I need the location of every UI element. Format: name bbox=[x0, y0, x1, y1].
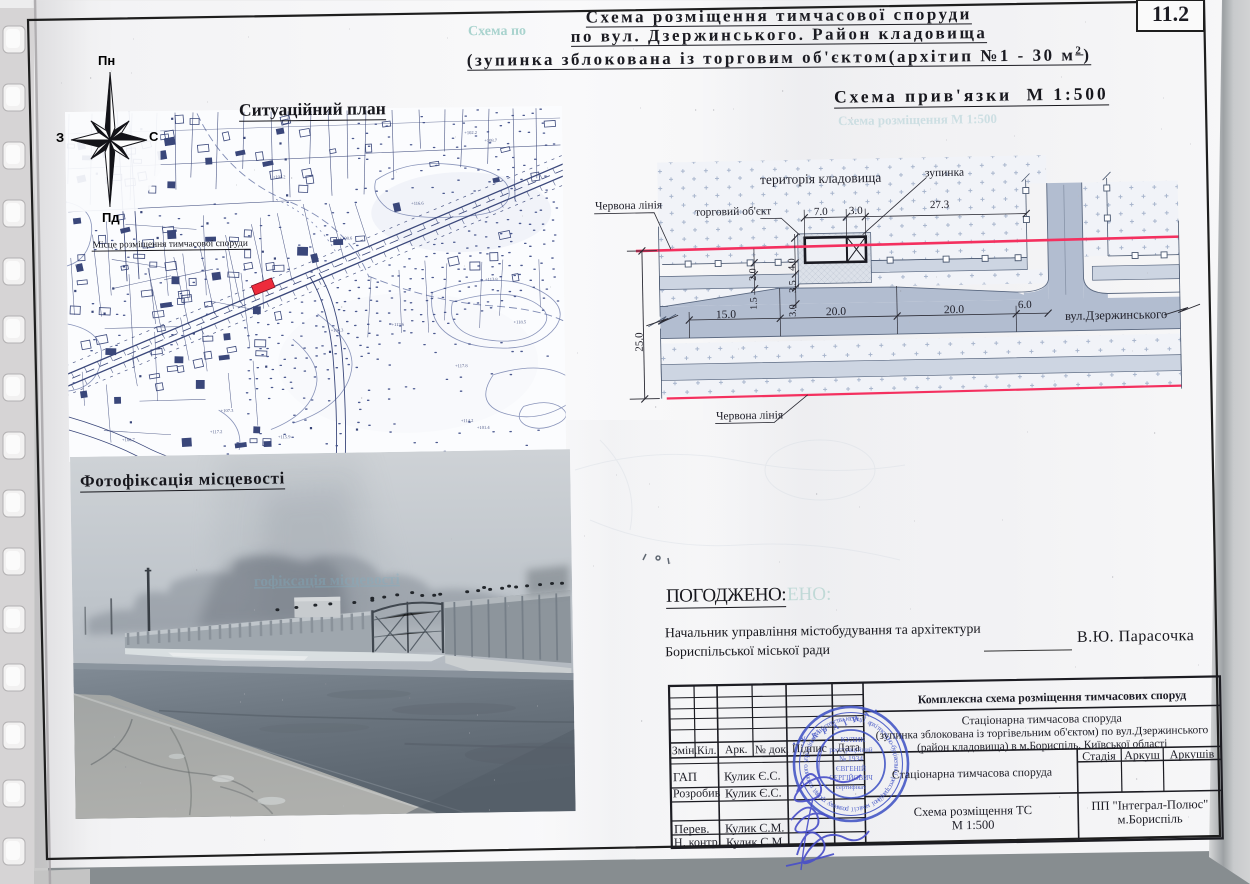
svg-text:+104.3: +104.3 bbox=[331, 328, 344, 333]
svg-text:+118.5: +118.5 bbox=[514, 319, 527, 324]
svg-text:ї: ї bbox=[851, 805, 853, 813]
svg-text:+108.6: +108.6 bbox=[340, 235, 353, 240]
svg-text:+114.2: +114.2 bbox=[461, 418, 474, 423]
svg-text:+113.6: +113.6 bbox=[392, 322, 405, 327]
svg-text:+113.8: +113.8 bbox=[485, 277, 498, 282]
svg-text:+117.2: +117.2 bbox=[210, 429, 223, 434]
svg-text:гофіксація місцевості: гофіксація місцевості bbox=[254, 572, 400, 590]
svg-text:+115.9: +115.9 bbox=[278, 434, 291, 439]
svg-text:+102.2: +102.2 bbox=[464, 130, 477, 135]
svg-text:+117.8: +117.8 bbox=[455, 363, 468, 368]
svg-text:+101.4: +101.4 bbox=[477, 425, 490, 430]
svg-text:+107.3: +107.3 bbox=[221, 408, 234, 413]
svg-text:+100.7: +100.7 bbox=[122, 437, 135, 442]
svg-text:+116.6: +116.6 bbox=[411, 201, 424, 206]
svg-text:+101.2: +101.2 bbox=[273, 174, 286, 179]
svg-text:ЄВГЕНІЙ: ЄВГЕНІЙ bbox=[836, 765, 866, 773]
svg-text:Місце розміщення тимчасової сп: Місце розміщення тимчасової споруди bbox=[93, 239, 248, 251]
svg-text:+108.7: +108.7 bbox=[484, 138, 497, 143]
svg-text:сертифікат: сертифікат bbox=[836, 784, 866, 791]
